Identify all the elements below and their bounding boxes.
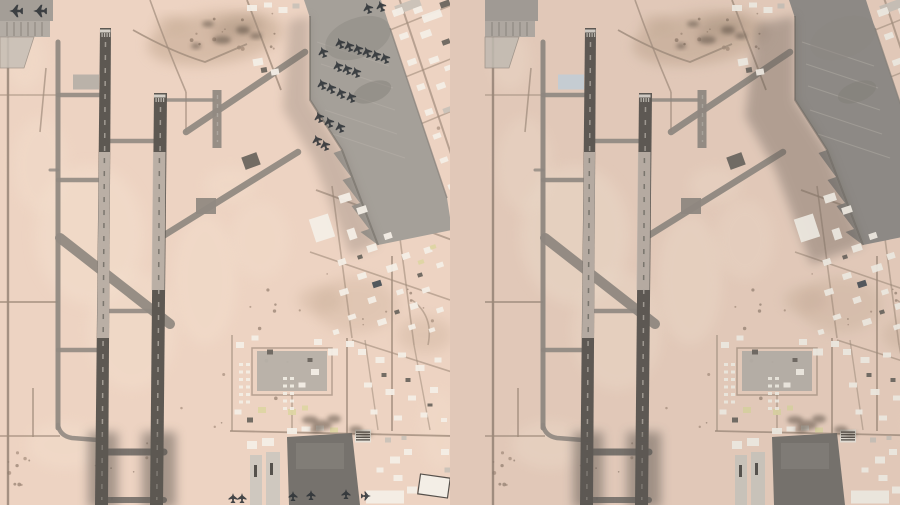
panel-tint xyxy=(0,0,450,505)
satellite-photo-before xyxy=(0,0,450,505)
scene xyxy=(0,0,450,505)
satellite-panel-after xyxy=(450,0,900,505)
satellite-panel-before xyxy=(0,0,450,505)
satellite-photo-after xyxy=(450,0,900,505)
before-after-satellite-comparison xyxy=(0,0,900,505)
scene xyxy=(450,0,900,505)
panel-tint xyxy=(450,0,900,505)
